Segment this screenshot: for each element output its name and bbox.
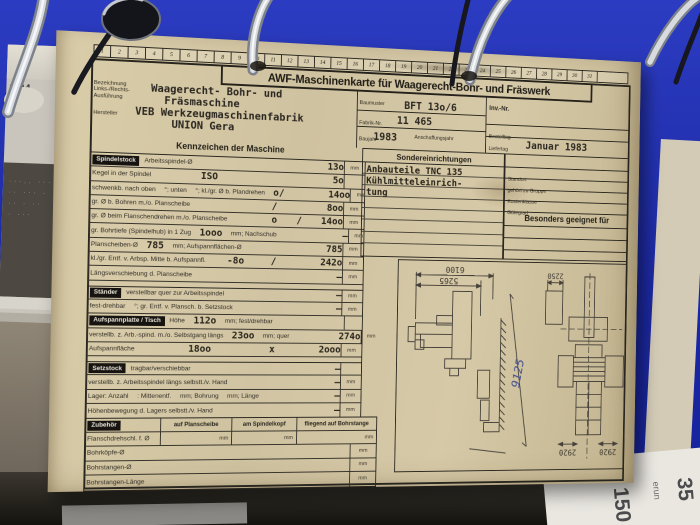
value-cell: – [268,391,340,402]
unit-label: mm [342,257,363,270]
zubehoer-col-header: am Spindelkopf [232,418,297,431]
dim-2250: 2250 [547,271,564,280]
strip-cell: 23 [459,64,475,77]
unit-label: mm [360,330,381,343]
strip-cell: 14 [315,56,332,69]
typed-value: 5o [333,176,344,187]
spec-table: SpindelstockArbeitsspindel-Ø13ommKegel i… [85,151,366,419]
baumuster-value: BFT 13o/6 [404,99,457,114]
rotated-text: 35 [671,477,697,502]
strip-cell: 12 [282,54,299,67]
value-cell: – [268,405,340,416]
typed-value: 1ooo [199,227,222,238]
manufacturer-city: UNION Gera [171,118,234,133]
value-cell [273,322,344,323]
printed-label: mm; Bohrung [180,393,219,400]
typed-value: 23oo [232,330,255,341]
inv-nr-label: Inv.-Nr. [489,105,509,112]
dim-5265: 5265 [439,275,458,285]
unit-label: mm [342,271,363,284]
value-cell: – [269,364,341,375]
fabrik-nr-value: 11 465 [397,114,432,128]
typed-value: ISO [201,171,218,182]
strip-cell: 26 [506,66,522,79]
designation-block: Bezeichnung Links-/Rechts- Ausführung He… [90,78,358,148]
rotated-text: erun [651,481,663,500]
strip-cell: 25 [491,65,507,78]
unit-label [340,363,361,375]
printed-label: gr. Ø beim Flanschendrehen m./o. Plansch… [91,212,227,222]
value-cell: 13o [272,160,344,173]
strip-cell-blank [598,71,629,84]
typed-value: 2ooo [319,345,341,356]
sondereinrichtungen-block: Sondereinrichtungen Anbauteile TNC 135Kü… [360,148,504,260]
printed-label: gr. Bohrtiefe (Spindelhub) in 1 Zug [91,227,191,236]
machine-card: 1234567891011121314151617181920212223242… [48,30,641,492]
printed-label: Höhenbewegung d. Lagers selbstt./v. Hand [88,407,213,414]
technical-drawing: 6100 5265 2250 2920 2920 9125 [394,259,627,472]
baujahr-value: 1983 [373,130,397,143]
strip-cell: 7 [197,50,214,64]
printed-label: Bohrstangen-Länge [84,472,349,490]
printed-label: tragbar/verschiebbar [131,365,191,372]
strip-cell: 5 [163,48,180,62]
dim-2920-right: 2920 [599,447,616,456]
typed-value: 13o [327,162,344,173]
strip-cell: 15 [331,57,348,70]
value-cell: /14oo [279,188,350,201]
strip-cell: 11 [265,53,282,66]
printed-label: gr. Ø b. Bohren m./o. Planscheibe [92,198,191,208]
strip-cell: 20 [412,61,428,74]
printed-label: verstellb. z. Arb.-spind. m./o. Selbstga… [89,331,223,339]
unit-label: mm [297,431,377,444]
liefertag-label: Liefertag [488,146,508,152]
strip-cell: 6 [180,49,197,63]
sonder-typed-text: Anbauteile TNC 135Kühlmitteleinrich-tung [366,164,463,201]
printed-label: mm; quer [263,333,290,340]
unit-label [344,317,365,330]
strip-cell: 10 [248,52,265,65]
typed-value: 8oo [327,203,344,214]
spec-row: verstellb. z. Arbeitsspindel längs selbs… [86,376,361,390]
value-cell: /242o [271,257,343,269]
typed-value: 18oo [188,344,211,355]
strip-cell: 17 [364,58,380,71]
value-cell: – [270,303,342,314]
value-cell: x2ooo [269,344,341,355]
strip-cell: 19 [396,60,412,73]
printed-label: Längsverschiebung d. Planscheibe [90,269,192,278]
binder-photo: 2/84 ···.. ····· ··· ··· · ··· ··· 35 er… [0,0,700,525]
strip-cell: 1 [93,44,111,58]
strip-cell: 29 [552,68,567,81]
value-cell: 785 [271,243,343,255]
section-tab: Aufspannplatte / Tisch [89,315,164,326]
besonders-empty-rows [504,226,628,264]
inventory-block: Inv.-Nr. Bestelltag Liefertag Januar 198… [486,97,630,158]
printed-label: mm; Länge [227,393,259,400]
rotated-text: 150 [608,486,635,523]
value-cell: /8oo [272,201,344,214]
value-cell: 5o [272,174,344,187]
printed-label: Flanschdrehschl. f. Ø [85,432,160,445]
section-tab: Zubehör [87,420,120,430]
strip-cell: 9 [231,51,248,64]
unit-label: mm [340,344,361,357]
printed-label: Planscheiben-Ø [91,241,138,249]
typed-value: 274o [339,331,361,342]
strip-cell: 21 [428,62,444,75]
value-cell: – [276,229,348,241]
typed-value: / [279,188,285,199]
printed-label: Lager: Anzahl [88,393,129,400]
value-cell: o/14oo [271,215,343,227]
unit-label: mm [341,303,362,316]
strip-cell: 30 [567,69,582,82]
printed-label: verstellbar quer zur Arbeitsspindel [126,289,224,297]
spec-row: Aufspannfläche18oox2ooomm [87,342,362,358]
hersteller-label: Hersteller [93,110,117,117]
strip-cell: 8 [215,51,232,65]
printed-label: mm; Nachschub [231,230,277,238]
strip-cell: 24 [475,64,491,77]
unit-label: mm [160,432,232,445]
strip-cell: 18 [380,59,396,72]
printed-label: Höhe [169,318,185,325]
printed-label: mm; fest/drehbar [225,318,273,325]
value-cell: – [270,271,342,283]
zubehoer-row: Bohrstangen-Längemm [84,472,375,491]
typed-value: / [296,216,302,227]
dim-6100: 6100 [446,264,465,274]
strip-cell: 4 [146,47,164,61]
printed-label: : Mittenentf. [137,393,171,400]
dim-9125-handwritten: 9125 [510,358,528,389]
unit-label: mm [341,290,362,302]
typed-value: x [269,344,275,355]
value-cell: – [270,290,342,302]
page-number-label: 2/84 [9,83,31,95]
strip-cell: 2 [111,45,129,59]
typed-value: / [271,257,277,268]
model-block: Baumuster BFT 13o/6 Fabrik-Nr. 11 465 Ba… [357,91,487,153]
typed-value: 785 [146,240,164,251]
typed-value: 14oo [328,189,350,200]
strip-cell: 28 [537,68,552,81]
unit-label: mm [350,444,376,457]
fabrik-nr-label: Fabrik-Nr. [359,120,382,127]
strip-cell: 3 [128,46,146,60]
spec-row: Setzstocktragbar/verschiebbar– [86,361,361,376]
printed-label: Kegel in der Spindel [92,170,151,179]
section-tab: Setzstock [88,363,126,373]
typed-value: 112o [193,316,216,327]
anschaffungsjahr-label: Anschaffungsjahr [414,135,453,143]
unit-label: mm [340,390,361,403]
zubehoer-col-header: fliegend auf Bohrstange [297,417,377,430]
baumuster-label: Baumuster [360,100,385,107]
typed-value: 14oo [321,217,343,228]
strip-cell: 31 [582,70,597,83]
photo-paper-edge [62,502,247,525]
printed-label: kl./gr. Entf. v. Arbsp. Mitte b. Aufspan… [90,255,205,264]
strip-cell: 27 [522,67,538,80]
typed-value: 785 [326,244,343,255]
printed-label: °; gr. Entf. v. Plansch. b. Setzstock [134,303,233,311]
printed-label: schwenkb. nach oben [92,184,156,193]
typed-value: / [272,201,278,212]
zubehoer-col-header: auf Planscheibe [161,418,233,431]
unit-label: mm [340,376,361,389]
location-block: Standortgehört zu GruppeKostenklasseGüte… [503,153,629,262]
zubehoer-table: Zubehörauf Planscheibeam Spindelkopfflie… [83,416,377,491]
value-cell: 274o [289,331,360,342]
unit-label: mm [349,472,375,486]
unit-label: mm [339,403,360,417]
strip-cell: 22 [444,63,460,76]
dim-2920-left: 2920 [559,448,576,457]
typed-value: 242o [320,258,342,269]
typed-value: -8o [227,256,244,267]
printed-label: Arbeitsspindel-Ø [144,157,192,166]
section-tab: Spindelstock [92,154,139,166]
spec-row: Lager: Anzahl: Mittenentf.mm; Bohrungmm;… [86,390,361,404]
location-rows: Standortgehört zu GruppeKostenklasseGüte… [505,167,629,215]
strip-cell: 13 [298,55,315,68]
strip-cell: 16 [348,58,364,71]
printed-label: fest-drehbar [90,303,126,310]
printed-label: verstellb. z. Arbeitsspindel längs selbs… [88,379,227,386]
printed-label: mm; Aufspannflächen-Ø [172,243,241,251]
printed-label: °; kl./gr. Ø b. Plandrehen [195,187,265,196]
sonder-row [361,243,502,258]
printed-label: °; unten [164,186,187,194]
printed-label: Aufspannfläche [89,345,135,352]
typed-value: o [271,215,277,226]
unit-label: mm [232,431,297,444]
unit-label: mm [349,458,375,471]
value-cell: – [268,377,340,388]
liefertag-value: Januar 1983 [525,139,587,153]
section-tab: Ständer [90,287,122,297]
